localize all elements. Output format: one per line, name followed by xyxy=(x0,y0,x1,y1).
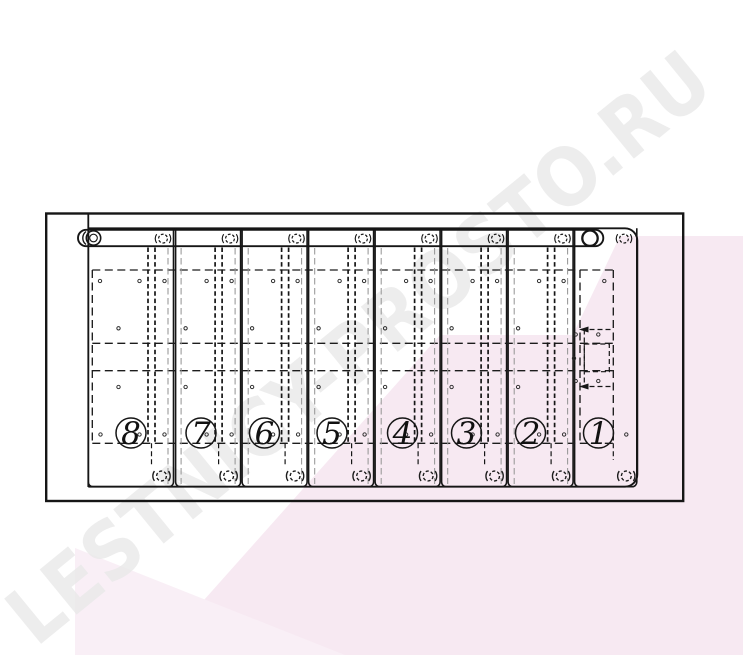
position-number: 4 xyxy=(392,416,413,452)
position-number: 7 xyxy=(191,416,211,452)
position-number: 3 xyxy=(457,416,477,452)
drawing-page: LESTNICY-PROSTO.RU xyxy=(0,0,743,655)
position-number: 1 xyxy=(589,416,609,452)
position-number: 2 xyxy=(520,416,541,452)
position-number: 5 xyxy=(322,416,342,452)
assembly-drawing: LESTNICY-PROSTO.RU xyxy=(0,0,743,655)
position-number: 8 xyxy=(121,416,141,452)
position-number: 6 xyxy=(255,416,275,452)
